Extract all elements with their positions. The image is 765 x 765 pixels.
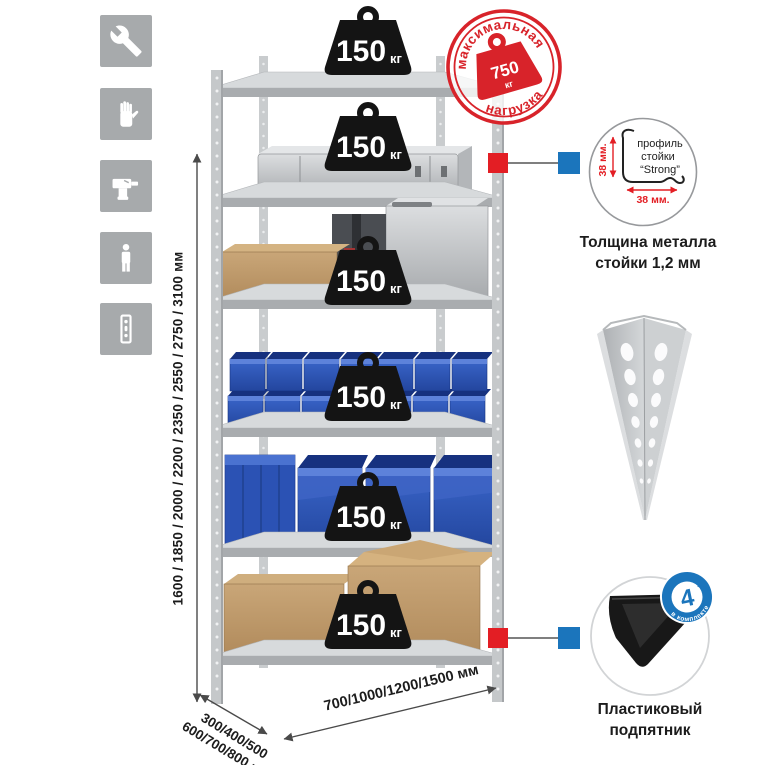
svg-text:38 мм.: 38 мм. [597, 143, 609, 176]
svg-text:“Strong”: “Strong” [640, 164, 680, 176]
profile-marker-blue [558, 152, 580, 174]
plastic-foot-inset: 4 штуки в комплекте [591, 566, 718, 695]
svg-text:кг: кг [390, 281, 403, 296]
svg-text:кг: кг [390, 397, 403, 412]
svg-text:150: 150 [336, 265, 386, 298]
profile-marker-red [488, 153, 508, 173]
max-load-stamp: максимальная нагрузка 750 кг [435, 0, 574, 136]
svg-text:150: 150 [336, 35, 386, 68]
load-badge-shelf-2: 150 кг [325, 105, 412, 171]
svg-text:150: 150 [336, 609, 386, 642]
corner-post-image [597, 316, 692, 520]
svg-text:кг: кг [390, 517, 403, 532]
svg-text:150: 150 [336, 501, 386, 534]
profile-detail-inset: 38 мм. 38 мм. профиль стойки “Strong” [590, 119, 697, 226]
foot-callout-connector [488, 627, 580, 649]
svg-text:150: 150 [336, 381, 386, 414]
svg-text:кг: кг [390, 51, 403, 66]
scene-graphic: 150 кг 150 кг 150 кг 150 кг 150 кг [0, 0, 765, 765]
svg-text:профиль: профиль [637, 138, 683, 150]
foot-marker-blue [558, 627, 580, 649]
svg-text:кг: кг [390, 147, 403, 162]
svg-text:стойки: стойки [641, 151, 675, 163]
svg-text:150: 150 [336, 131, 386, 164]
svg-text:38 мм.: 38 мм. [636, 194, 669, 206]
profile-callout-connector [488, 152, 580, 174]
load-badge-shelf-1: 150 кг [325, 9, 412, 75]
foot-caption: Пластиковый подпятник [568, 700, 732, 742]
foot-marker-red [488, 628, 508, 648]
height-dimension-label: 1600 / 1850 / 2000 / 2200 / 2350 / 2550 … [171, 149, 186, 709]
profile-caption: Толщина металла стойки 1,2 мм [566, 233, 730, 275]
svg-text:кг: кг [390, 625, 403, 640]
infographic-canvas: 150 кг 150 кг 150 кг 150 кг 150 кг [0, 0, 765, 765]
